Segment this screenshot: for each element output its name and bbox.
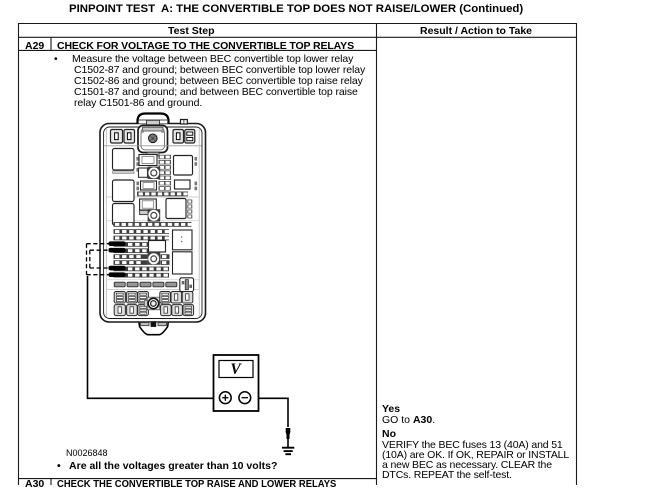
svg-text:V: V <box>230 361 242 378</box>
